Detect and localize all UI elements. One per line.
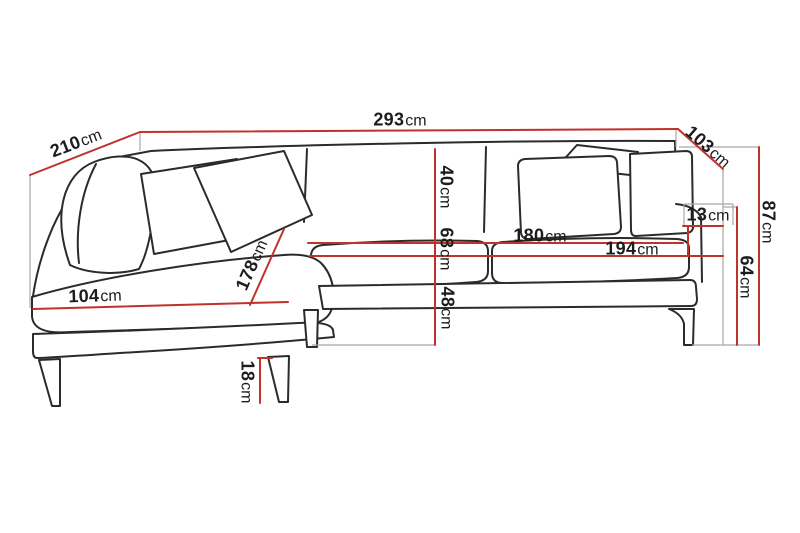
dim-value: 40 [438,166,456,187]
dim-value: 194 [605,240,636,258]
sofa-back-seam-right [484,147,486,232]
dim-label-seat-width-between: 180cm [513,227,566,246]
dim-value: 104 [68,286,100,305]
dim-label-seat-height: 48cm [438,287,457,330]
dim-label-chaise-front-width: 104cm [68,286,122,307]
dim-unit: cm [238,382,254,403]
dim-unit: cm [545,230,566,246]
dim-value: 293 [373,111,404,129]
dim-unit: cm [737,277,753,298]
leg-right [669,309,694,345]
dim-value: 13 [687,206,708,224]
leg-front-mid [268,356,289,402]
dim-label-armrest-above-seat: 13cm [687,206,730,225]
dim-label-back-cushion-height: 40cm [437,166,456,209]
dim-unit: cm [100,289,122,306]
dim-value: 87 [760,201,778,222]
leg-junction [304,310,318,347]
diagram-drawing [0,0,800,533]
sofa-dimension-diagram: 293cm 210cm 103cm 87cm 64cm 13cm 194cm 1… [0,0,800,533]
dim-unit: cm [438,308,454,329]
chaise-left-edge [33,209,62,296]
sofa-outline [32,141,702,406]
dim-label-armrest-height: 64cm [737,256,756,299]
dim-unit: cm [708,209,729,225]
dim-unit: cm [437,249,453,270]
dim-unit: cm [405,114,426,130]
dim-value: 64 [738,256,756,277]
dim-value: 18 [239,361,257,382]
dim-value: 180 [513,227,544,245]
dim-label-overall-height: 87cm [759,201,778,244]
dim-label-overall-width: 293cm [373,111,426,130]
dim-value: 68 [438,228,456,249]
seat-cushion-left [311,241,488,289]
leg-front-left [39,359,60,406]
dim-label-seat-width-to-armrest: 194cm [605,240,658,259]
dim-unit: cm [637,243,658,259]
base-right [319,280,697,309]
dim-unit: cm [759,222,775,243]
dim-label-back-height-above-seat: 68cm [437,228,456,271]
dim-label-leg-height: 18cm [238,361,257,404]
dim-unit: cm [437,187,453,208]
dim-value: 48 [439,287,457,308]
